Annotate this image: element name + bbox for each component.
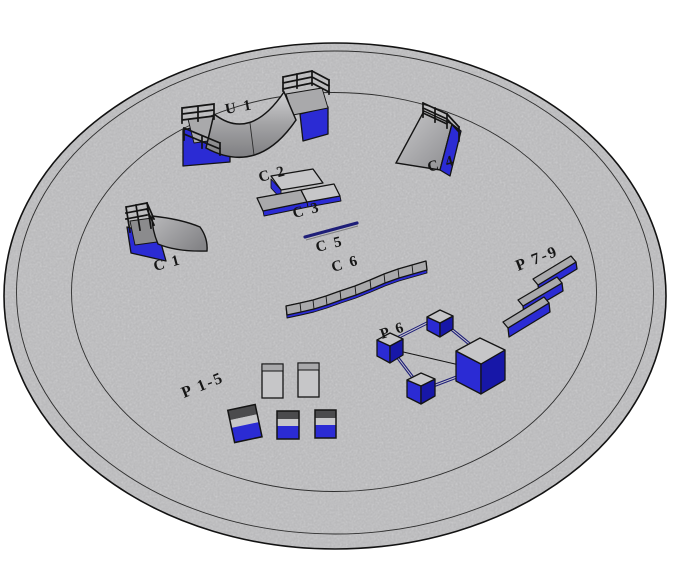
p15-cube-1 bbox=[228, 404, 262, 442]
p15-cube2-mid bbox=[277, 419, 299, 426]
p15-cube3-mid bbox=[315, 418, 336, 425]
p15-cube2-top bbox=[277, 411, 299, 419]
p15-tall-box-1 bbox=[262, 364, 283, 398]
skatepark-layout-figure: U 1 C 4 C 1 C 2 C 3 C 5 bbox=[0, 0, 680, 579]
p15-cube-2 bbox=[277, 411, 299, 439]
p15-cube3-front bbox=[315, 425, 336, 438]
p15-cube3-top bbox=[315, 410, 336, 418]
p15-tall-box-2 bbox=[298, 363, 319, 397]
p15-box1-top bbox=[262, 364, 283, 371]
p15-cube-3 bbox=[315, 410, 336, 438]
p15-cube2-front bbox=[277, 426, 299, 439]
p15-box2-top bbox=[298, 363, 319, 370]
scene-canvas: U 1 C 4 C 1 C 2 C 3 C 5 bbox=[0, 0, 680, 579]
